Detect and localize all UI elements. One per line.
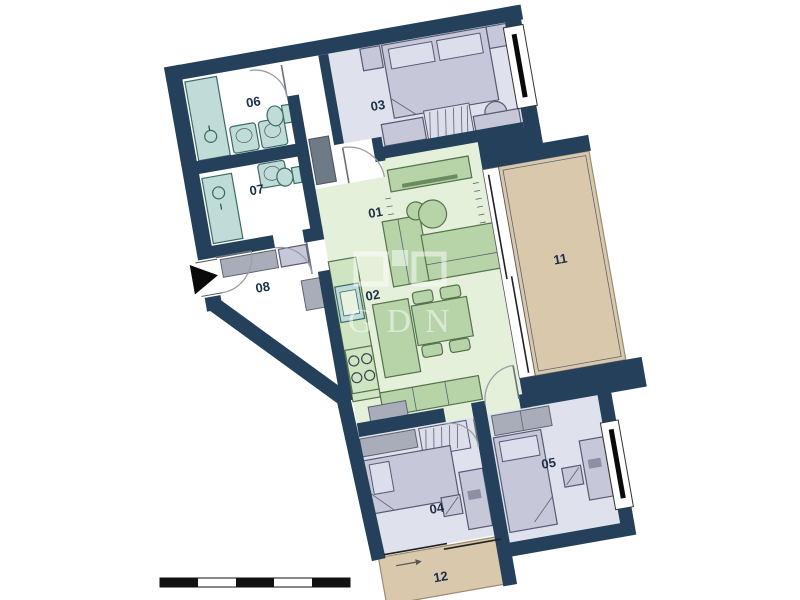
watermark-text: GDN — [348, 303, 464, 340]
room-label-05: 05 — [540, 455, 557, 472]
scale-bar — [160, 578, 350, 587]
scale-bar-segment — [312, 578, 350, 587]
room-label-01: 01 — [367, 204, 384, 221]
plan-rotated-group: 01 02 03 04 05 06 07 08 11 12 — [155, 0, 676, 600]
room-label-11: 11 — [552, 250, 568, 267]
room-label-07: 07 — [248, 181, 265, 198]
room-label-06: 06 — [245, 93, 262, 110]
room-label-12: 12 — [432, 568, 449, 585]
floor-plan: 01 02 03 04 05 06 07 08 11 12 GDN — [0, 0, 800, 600]
watermark-logo-icon — [392, 250, 408, 266]
floor-plan-page: 01 02 03 04 05 06 07 08 11 12 GDN — [0, 0, 800, 600]
room-label-02: 02 — [364, 287, 381, 304]
sink — [229, 122, 259, 153]
room-label-08: 08 — [254, 279, 271, 296]
room-label-03: 03 — [369, 97, 386, 114]
scale-bar-segment — [236, 578, 274, 587]
nightstand — [360, 46, 384, 71]
scale-bar-segment — [160, 578, 198, 587]
